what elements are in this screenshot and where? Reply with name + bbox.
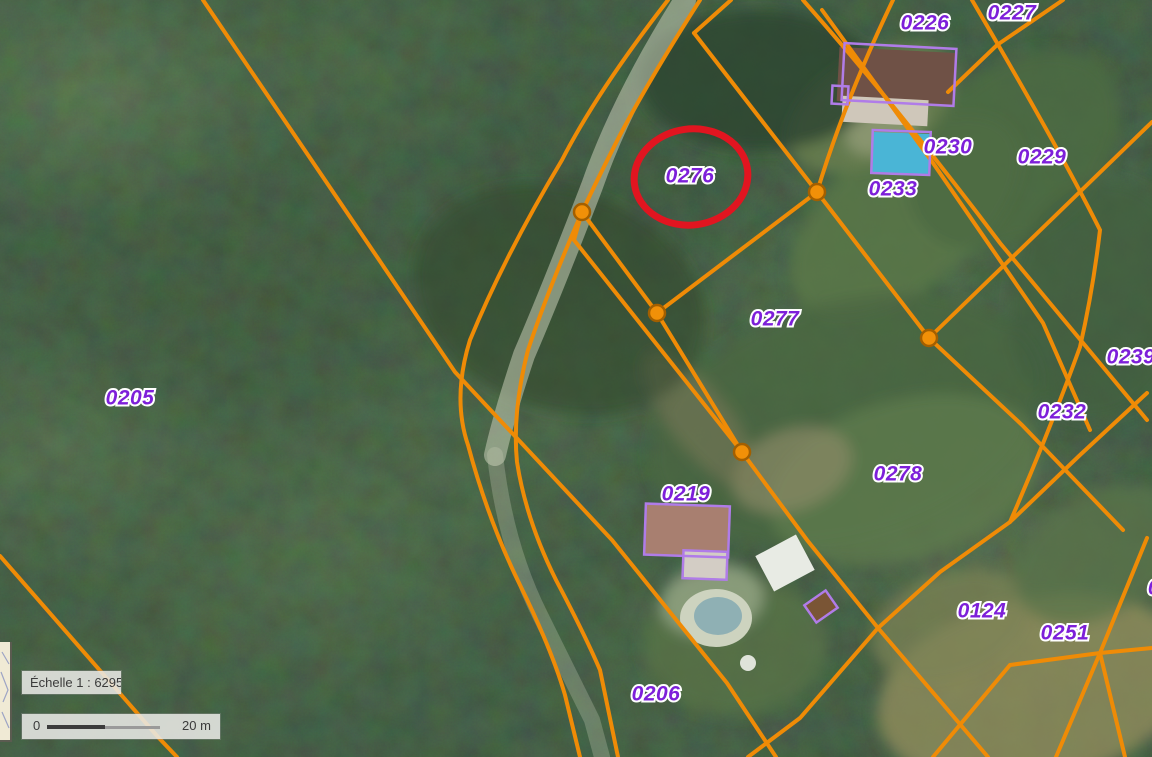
boundary-vertex-dot	[734, 444, 750, 460]
scale-bar-light-segment	[105, 726, 160, 729]
parcel-label-0205[interactable]: 0205	[106, 387, 155, 410]
scale-text: Échelle 1 : 6295	[30, 675, 121, 690]
minimap-sketch	[0, 642, 10, 740]
pond-water	[694, 597, 742, 635]
parcel-label-0219[interactable]: 0219	[662, 483, 711, 506]
boundary-vertex-dot	[921, 330, 937, 346]
ground-blob	[740, 655, 756, 671]
parcel-label-0233[interactable]: 0233	[869, 178, 918, 201]
overview-minimap[interactable]	[0, 642, 12, 742]
scale-bar-end-label: 20 m	[182, 718, 211, 733]
scale-bar-dark-segment	[47, 725, 105, 729]
parcel-label-0230[interactable]: 0230	[924, 136, 973, 159]
parcel-label-0251[interactable]: 0251	[1041, 622, 1090, 645]
parcel-label-0278[interactable]: 0278	[874, 463, 923, 486]
scale-bar-start-label: 0	[33, 718, 40, 733]
parcel-label-0206[interactable]: 0206	[632, 683, 681, 706]
scale-bar-panel: 0 20 m	[22, 714, 220, 739]
parcel-label-0226[interactable]: 0226	[901, 12, 950, 35]
cadastre-map-view[interactable]: 0276027702050219020602780226022702300233…	[0, 0, 1152, 757]
boundary-vertex-dot	[809, 184, 825, 200]
parcel-label-0124[interactable]: 0124	[958, 600, 1007, 623]
parcel-label-0276[interactable]: 0276	[666, 165, 715, 188]
parcel-label-0232[interactable]: 0232	[1038, 401, 1087, 424]
scale-text-panel: Échelle 1 : 6295	[22, 671, 121, 694]
map-canvas[interactable]: 0276027702050219020602780226022702300233…	[0, 0, 1152, 757]
parcel-label-0277[interactable]: 0277	[751, 308, 801, 331]
parcel-label-01[interactable]: 01	[1148, 577, 1152, 600]
parcel-label-0227[interactable]: 0227	[988, 2, 1038, 25]
boundary-vertex-dot	[574, 204, 590, 220]
parcel-label-0239[interactable]: 0239	[1107, 346, 1152, 369]
parcel-label-0229[interactable]: 0229	[1018, 146, 1067, 169]
boundary-vertex-dot	[649, 305, 665, 321]
